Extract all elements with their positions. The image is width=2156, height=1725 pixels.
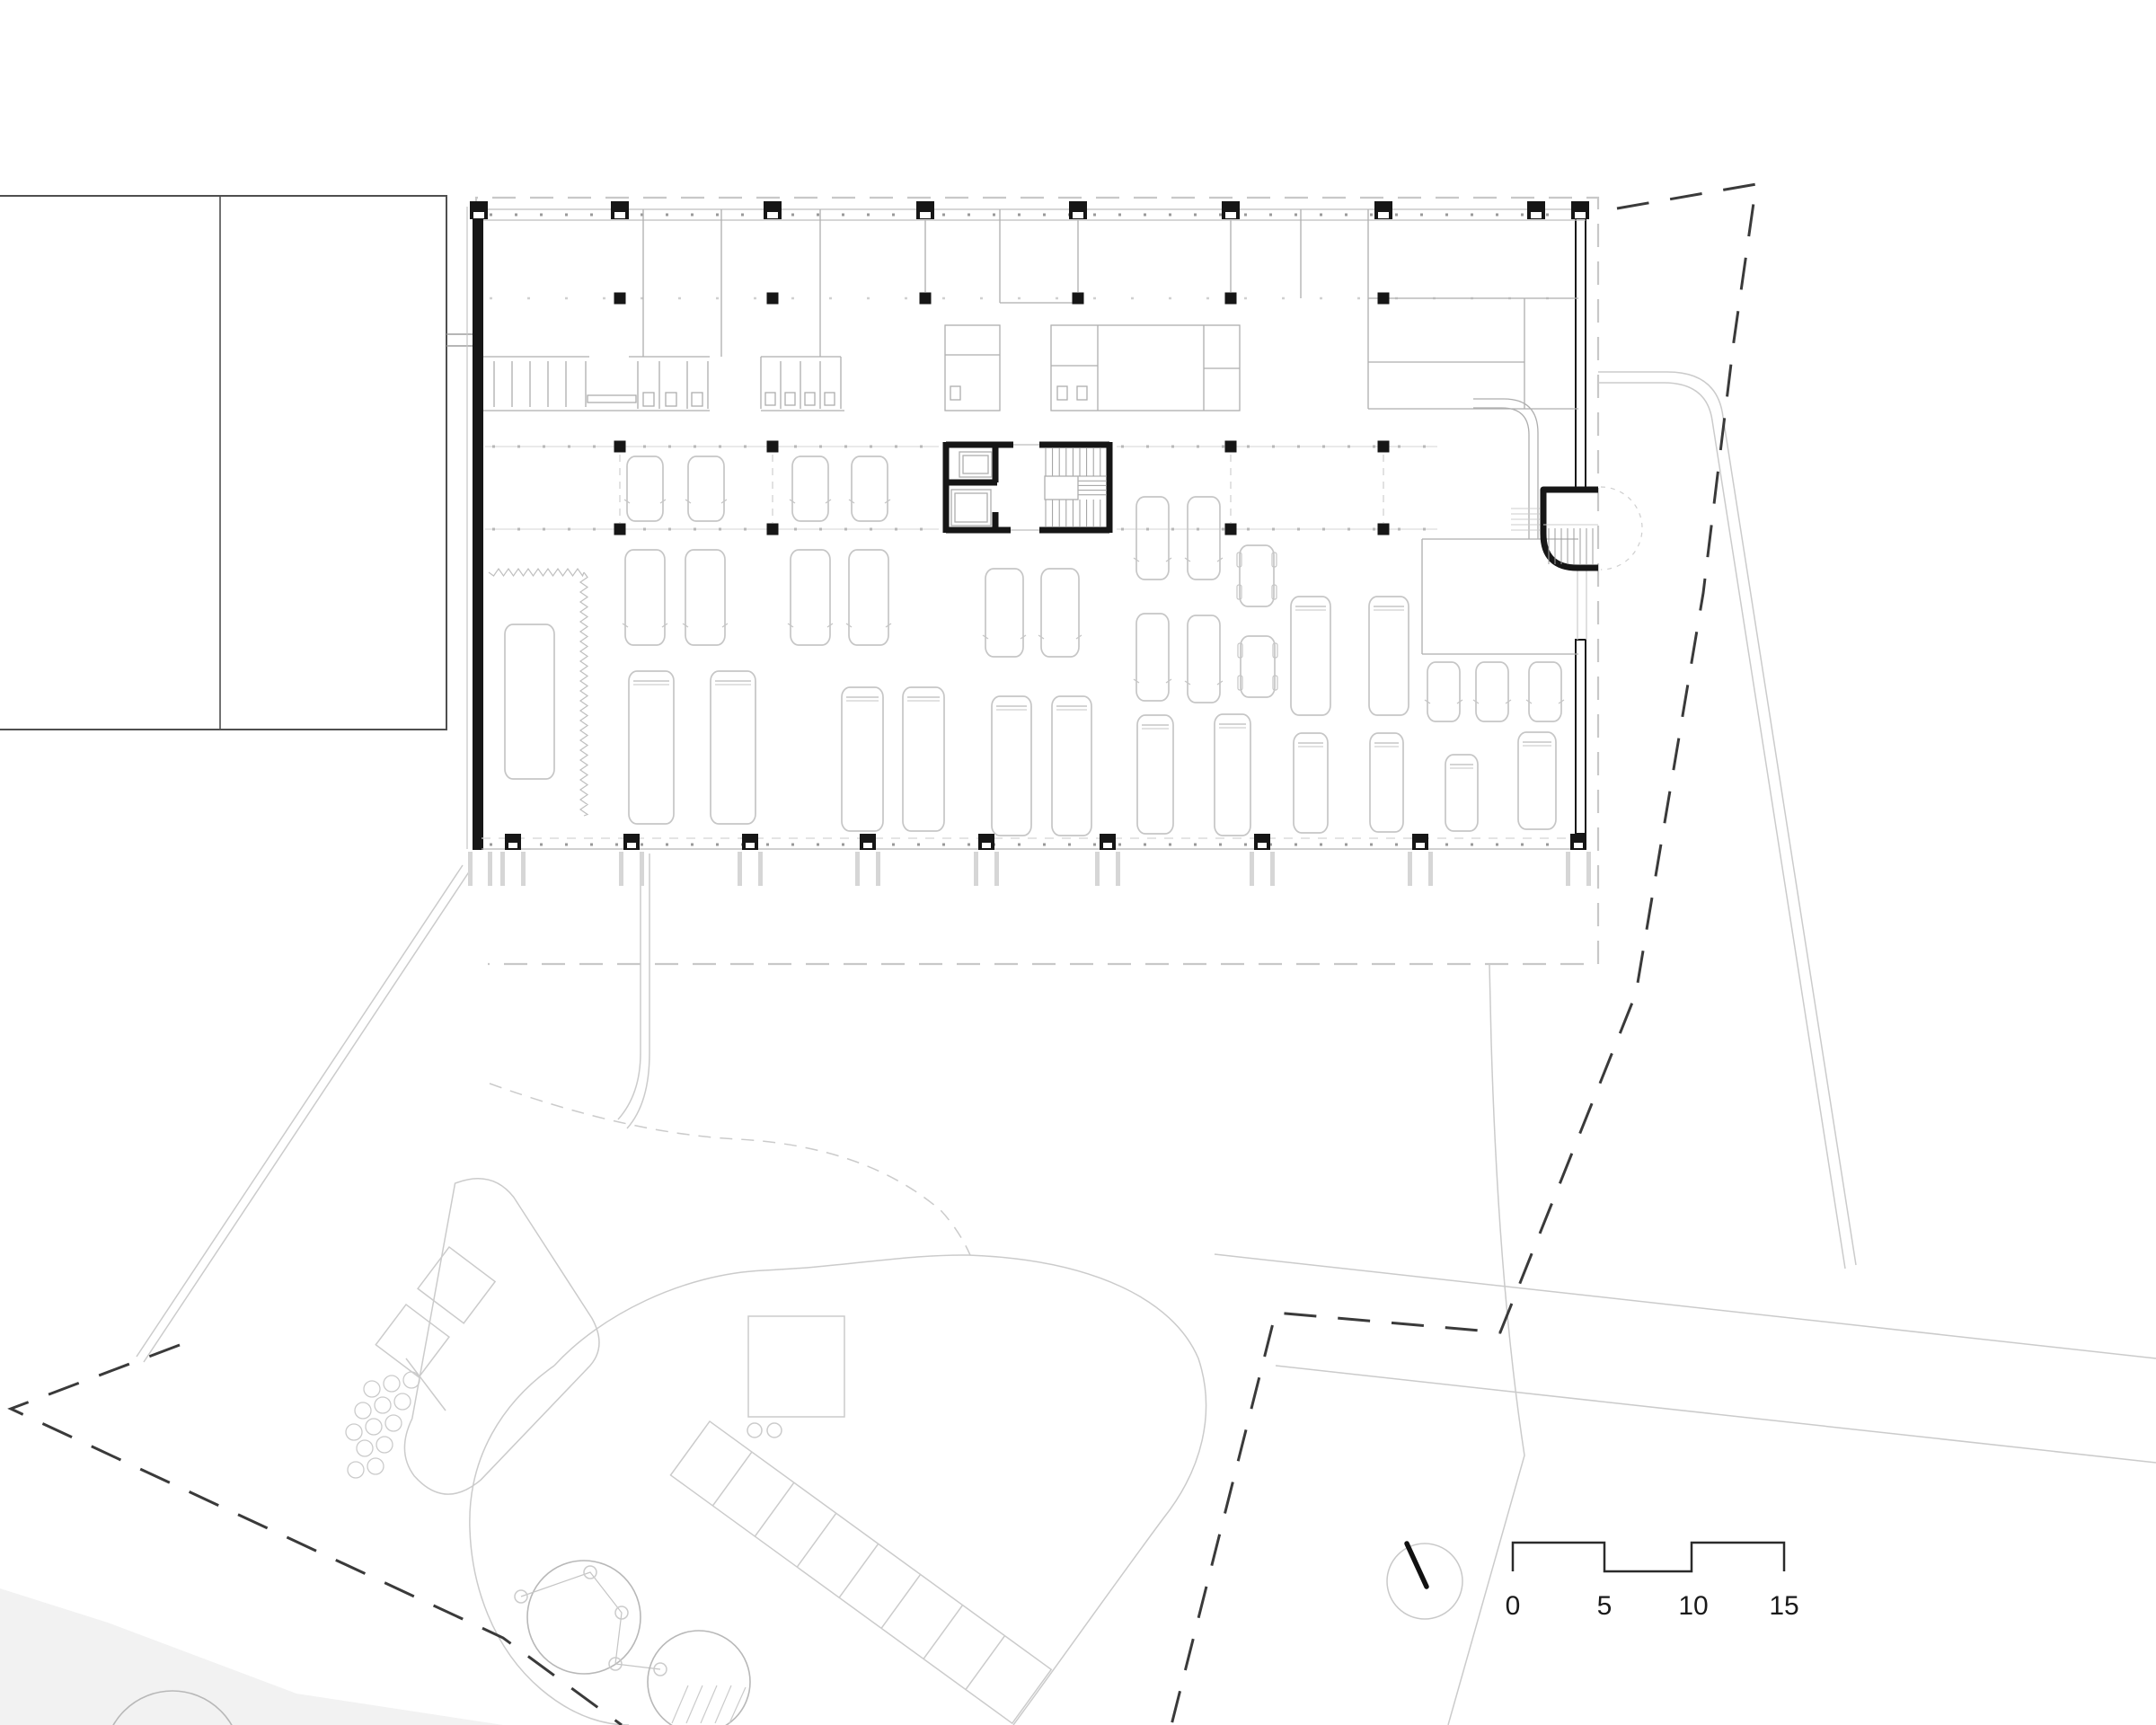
vehicle-van	[846, 550, 891, 645]
vehicle-truck	[1137, 715, 1173, 834]
vehicle-body	[903, 687, 944, 831]
lockers	[494, 361, 586, 407]
door-post	[1428, 852, 1433, 886]
door-post	[488, 852, 492, 886]
cubicle-band	[483, 325, 1240, 411]
vehicle-van	[685, 456, 727, 521]
facade-column-notch	[1258, 843, 1267, 848]
column-cap-notch	[1531, 212, 1542, 218]
vehicle-truck	[1370, 733, 1403, 832]
structural-grid	[485, 298, 1572, 529]
grid-column	[767, 441, 779, 453]
vehicle-body	[849, 550, 888, 645]
column-cap-notch	[767, 212, 778, 218]
door-post	[994, 852, 999, 886]
scale-label: 15	[1769, 1591, 1798, 1621]
interior-column	[1225, 293, 1237, 305]
column-cap-notch	[1225, 212, 1236, 218]
tree	[515, 1561, 667, 1676]
vehicle-truck	[1291, 597, 1330, 715]
column-cap-notch	[614, 212, 625, 218]
vehicle-body	[688, 456, 724, 521]
vehicle-body	[1240, 545, 1274, 606]
vehicle-body	[1041, 569, 1079, 657]
vehicle-van	[983, 569, 1026, 657]
floor-plan-drawing: 0 5 10 15	[0, 0, 2156, 1725]
vehicle-body	[1291, 597, 1330, 715]
vehicle-body	[1241, 636, 1275, 697]
interior-column	[920, 293, 932, 305]
vehicle-body	[1445, 755, 1478, 831]
tree	[648, 1631, 750, 1725]
door-post	[876, 852, 880, 886]
door-post	[640, 852, 644, 886]
vehicle-car	[1237, 545, 1277, 606]
column-cap-notch	[920, 212, 931, 218]
interior-column	[1378, 293, 1390, 305]
vehicle-van	[623, 550, 667, 645]
door-post	[521, 852, 526, 886]
facade-column-notch	[1103, 843, 1112, 848]
vehicle-truck	[1445, 755, 1478, 831]
column-cap-notch	[1073, 212, 1083, 218]
scale-label: 5	[1597, 1591, 1613, 1621]
parking-vehicles	[505, 456, 1564, 836]
facade-column-notch	[1574, 843, 1583, 848]
vehicle-van	[1473, 662, 1511, 721]
door-swing	[1601, 487, 1642, 570]
vehicle-body	[842, 687, 883, 831]
interior-column	[614, 293, 626, 305]
playground	[104, 1255, 1206, 1725]
facade-column-notch	[627, 843, 636, 848]
vehicle-truck	[992, 696, 1031, 836]
vehicle-body	[1370, 733, 1403, 832]
interior-column	[767, 293, 779, 305]
grid-column	[1225, 441, 1237, 453]
door-post	[1250, 852, 1254, 886]
footpath	[618, 854, 641, 1119]
door-post	[1095, 852, 1100, 886]
floor-plan-canvas: 0 5 10 15	[0, 0, 2156, 1725]
interior-partitions	[643, 209, 1578, 654]
vehicle-body	[992, 696, 1031, 836]
vehicle-truck	[1518, 732, 1556, 829]
vehicle-body	[685, 550, 725, 645]
vehicle-body	[627, 456, 663, 521]
parking-stripes	[671, 1421, 1052, 1723]
scale-bar: 0 5 10 15	[1506, 1543, 1799, 1621]
vehicle-body	[1529, 662, 1561, 721]
door-post	[738, 852, 742, 886]
vehicle-van	[1425, 662, 1462, 721]
facade-column-notch	[982, 843, 991, 848]
site-fence	[137, 865, 463, 1357]
door-post	[468, 852, 473, 886]
play-pad	[748, 1316, 844, 1417]
east-wall	[1576, 209, 1586, 490]
vehicle-body	[1137, 715, 1173, 834]
east-stair	[1511, 487, 1642, 570]
north-needle-icon	[1407, 1544, 1427, 1587]
vehicle-van	[1134, 614, 1171, 701]
bike-island	[346, 1175, 607, 1501]
door-post	[758, 852, 763, 886]
door-post	[619, 852, 623, 886]
scale-label: 0	[1506, 1591, 1521, 1621]
vehicle-van	[1185, 497, 1223, 579]
door-post	[1566, 852, 1570, 886]
vehicle-body	[1215, 714, 1250, 836]
north-facade	[483, 209, 1586, 220]
neighbor-building	[0, 196, 473, 730]
vehicle-car	[1238, 636, 1277, 697]
vehicle-body	[1476, 662, 1508, 721]
vehicle-body	[505, 624, 554, 779]
vehicle-van	[683, 550, 728, 645]
vehicle-body	[629, 671, 674, 824]
road-surface	[0, 1588, 503, 1725]
west-wall	[473, 207, 483, 850]
facade-column-notch	[863, 843, 872, 848]
vehicle-truck	[1294, 733, 1328, 833]
grid-column	[614, 524, 626, 535]
vehicle-truck	[1369, 597, 1409, 715]
vehicle-body	[1294, 733, 1328, 833]
east-ramp	[1598, 372, 1856, 1265]
vehicle-truck	[711, 671, 755, 824]
vehicle-truck	[903, 687, 944, 831]
vehicle-body	[711, 671, 755, 824]
column-cap-notch	[1378, 212, 1389, 218]
vehicle-body	[852, 456, 888, 521]
grid-column	[1225, 524, 1237, 535]
vehicle-body	[791, 550, 830, 645]
door-post	[1408, 852, 1412, 886]
road-edge	[1215, 1254, 2156, 1358]
vehicle-van	[1185, 615, 1223, 703]
vehicle-truck	[1215, 714, 1250, 836]
door-post	[1586, 852, 1591, 886]
door-post	[974, 852, 978, 886]
vehicle-truck	[842, 687, 883, 831]
vehicle-body	[985, 569, 1023, 657]
vehicle-van	[1134, 497, 1171, 579]
vehicle-van	[788, 550, 833, 645]
facade-column-notch	[746, 843, 755, 848]
vehicle-body	[1369, 597, 1409, 715]
dashed-drive	[490, 1084, 970, 1255]
vehicle-van	[1526, 662, 1564, 721]
column-cap-notch	[473, 212, 484, 218]
door-post	[1116, 852, 1120, 886]
vehicle-body	[1136, 497, 1169, 579]
central-stair-core	[946, 442, 1109, 533]
main-building	[467, 201, 1642, 886]
grid-column	[1378, 441, 1390, 453]
vehicle-body	[792, 456, 828, 521]
grid-column	[767, 524, 779, 535]
grid-column	[614, 441, 626, 453]
interior-column	[1073, 293, 1084, 305]
door-post	[855, 852, 860, 886]
vehicle-van	[624, 456, 666, 521]
vehicle-body	[1052, 696, 1091, 836]
vehicle-truck	[1052, 696, 1091, 836]
door-post	[500, 852, 505, 886]
facade-column-notch	[508, 843, 517, 848]
north-compass	[1387, 1544, 1462, 1619]
vehicle-van	[1038, 569, 1082, 657]
grid-column	[1378, 524, 1390, 535]
column-cap-notch	[1575, 212, 1586, 218]
door-post	[1270, 852, 1275, 886]
facade-column-notch	[1416, 843, 1425, 848]
vehicle-truck	[629, 671, 674, 824]
vehicle-body	[1188, 497, 1220, 579]
vehicle-body	[625, 550, 665, 645]
vehicle-body	[1427, 662, 1460, 721]
vehicle-van	[849, 456, 890, 521]
vehicle-body	[1136, 614, 1169, 701]
scale-label: 10	[1678, 1591, 1708, 1621]
scale-bar-line	[1513, 1543, 1784, 1571]
vehicle-bus	[505, 624, 554, 779]
vehicle-van	[790, 456, 831, 521]
vehicle-body	[1188, 615, 1220, 703]
vehicle-body	[1518, 732, 1556, 829]
